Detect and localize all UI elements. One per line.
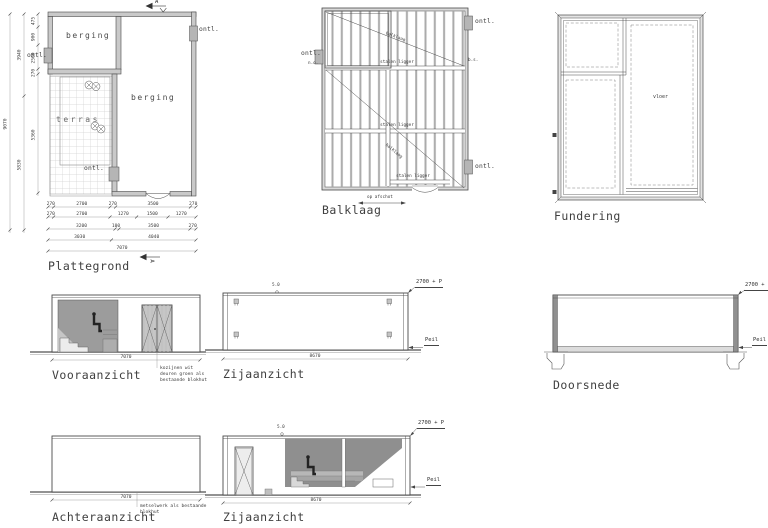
view-label-achteraanzicht: Achteraanzicht bbox=[52, 511, 156, 524]
level-arrows bbox=[408, 287, 423, 349]
dim: 4040 bbox=[148, 235, 159, 240]
dim: 7070 bbox=[120, 495, 131, 500]
height-mark: 2700 + P bbox=[744, 283, 768, 291]
note-line: kozijnen wit bbox=[160, 366, 193, 371]
plan-door bbox=[412, 185, 438, 192]
view-zijaanzicht-2: 5.0 2700 + P Peil 8670 Zijaanzicht bbox=[205, 415, 455, 528]
view-achteraanzicht: 7070 metselwerk als bestaande blokhut Ac… bbox=[30, 420, 230, 528]
wall-section bbox=[734, 295, 739, 352]
anchor-dot bbox=[553, 133, 557, 137]
post bbox=[342, 439, 345, 488]
footing bbox=[544, 352, 747, 369]
balklaag-drawing bbox=[300, 0, 500, 230]
dim: 7070 bbox=[116, 246, 127, 251]
plan-door bbox=[146, 194, 170, 199]
dim: 1270 bbox=[176, 212, 187, 217]
dim: 8670 bbox=[310, 498, 321, 503]
dim: 3500 bbox=[147, 202, 158, 207]
view-doorsnede: 2700 + P Peil Doorsnede bbox=[540, 280, 768, 395]
top-note: 5.0 bbox=[272, 284, 280, 289]
ontl-label: ontl. bbox=[199, 27, 219, 34]
view-label-fundering: Fundering bbox=[554, 210, 621, 223]
level-mark: Peil bbox=[424, 338, 439, 346]
note-right: b.s. bbox=[468, 59, 478, 64]
dim: 2700 bbox=[76, 212, 87, 217]
room-label-terras: terras bbox=[56, 116, 100, 125]
fundering-drawing bbox=[540, 0, 768, 230]
dim: 5360 bbox=[31, 129, 36, 140]
view-fundering: vloer Fundering bbox=[540, 0, 768, 230]
ontl-label: ontl. bbox=[27, 53, 47, 60]
drawing-sheet: berging berging terras ontl. ontl. ontl.… bbox=[0, 0, 768, 528]
ontl-label: ontl. bbox=[475, 164, 495, 171]
floor-label: vloer bbox=[653, 95, 668, 101]
view-label-zijaanzicht-1: Zijaanzicht bbox=[223, 368, 305, 381]
dim: 100 bbox=[112, 224, 120, 229]
view-zijaanzicht-1: 5.0 2700 + P Peil 8670 Zijaanzicht bbox=[205, 280, 455, 395]
level-arrows bbox=[738, 290, 752, 349]
dim: 9070 bbox=[3, 118, 8, 129]
dim: 8670 bbox=[309, 354, 320, 359]
dim: 3030 bbox=[74, 235, 85, 240]
floor-slab bbox=[558, 347, 734, 353]
ontl-label: ontl. bbox=[84, 166, 104, 173]
slope-note: op afschot bbox=[367, 196, 393, 201]
dim: 270 bbox=[109, 202, 117, 207]
beam-label: stalen ligger bbox=[396, 175, 430, 180]
ontl-label: ontl. bbox=[301, 51, 321, 58]
dim: 270 bbox=[189, 202, 197, 207]
height-mark: 2700 + P bbox=[415, 280, 443, 288]
beam-label: stalen ligger bbox=[380, 61, 414, 66]
ontl-label: ontl. bbox=[475, 19, 495, 26]
dim: 3200 bbox=[76, 224, 87, 229]
view-balklaag: stalen ligger stalen ligger stalen ligge… bbox=[300, 0, 500, 230]
room-label-berging-top: berging bbox=[66, 32, 110, 41]
door bbox=[142, 305, 172, 352]
note-line: deuren groen als bbox=[160, 372, 204, 377]
dim: 1270 bbox=[118, 212, 129, 217]
level-mark: Peil bbox=[752, 338, 767, 346]
view-plattegrond: berging berging terras ontl. ontl. ontl.… bbox=[0, 0, 230, 275]
view-label-balklaag: Balklaag bbox=[322, 204, 381, 217]
beam-label: stalen ligger bbox=[380, 124, 414, 129]
room-label-berging-right: berging bbox=[131, 94, 175, 103]
dim: 270 bbox=[189, 224, 197, 229]
dim: 1500 bbox=[147, 212, 158, 217]
dim: 270 bbox=[47, 212, 55, 217]
dim: 2560 bbox=[31, 52, 36, 63]
level-arrows bbox=[410, 428, 425, 489]
dim: 7070 bbox=[120, 355, 131, 360]
section-letter: A bbox=[155, 0, 158, 5]
vent-box bbox=[265, 489, 272, 495]
note-left: n.o. bbox=[308, 62, 318, 67]
section-letter: A bbox=[149, 259, 155, 262]
section-marker-a bbox=[140, 3, 167, 260]
dim: 3940 bbox=[17, 49, 22, 60]
dim: 475 bbox=[31, 16, 36, 24]
wall-section bbox=[553, 295, 558, 352]
dim: 270 bbox=[47, 202, 55, 207]
note-line: metselwerk als bestaande bbox=[140, 504, 206, 509]
view-label-doorsnede: Doorsnede bbox=[553, 379, 620, 392]
dim: 3500 bbox=[148, 224, 159, 229]
view-label-plattegrond: Plattegrond bbox=[48, 260, 130, 273]
dim: 2700 bbox=[76, 202, 87, 207]
terras-tiles bbox=[50, 76, 112, 194]
anchor-dot bbox=[553, 190, 557, 194]
view-label-zijaanzicht-2: Zijaanzicht bbox=[223, 511, 305, 524]
door bbox=[235, 447, 253, 495]
top-note: 5.0 bbox=[277, 426, 285, 431]
view-label-vooraanzicht: Vooraanzicht bbox=[52, 369, 141, 382]
dim: 900 bbox=[31, 33, 36, 41]
dim: 5830 bbox=[17, 159, 22, 170]
level-mark: Peil bbox=[426, 478, 441, 486]
dim: 270 bbox=[31, 68, 36, 76]
height-mark: 2700 + P bbox=[417, 421, 445, 429]
note-line: bestaande blokhut bbox=[160, 378, 207, 383]
porch-opening bbox=[58, 300, 118, 352]
view-vooraanzicht: 7070 kozijnen wit deuren groen als besta… bbox=[30, 280, 230, 395]
